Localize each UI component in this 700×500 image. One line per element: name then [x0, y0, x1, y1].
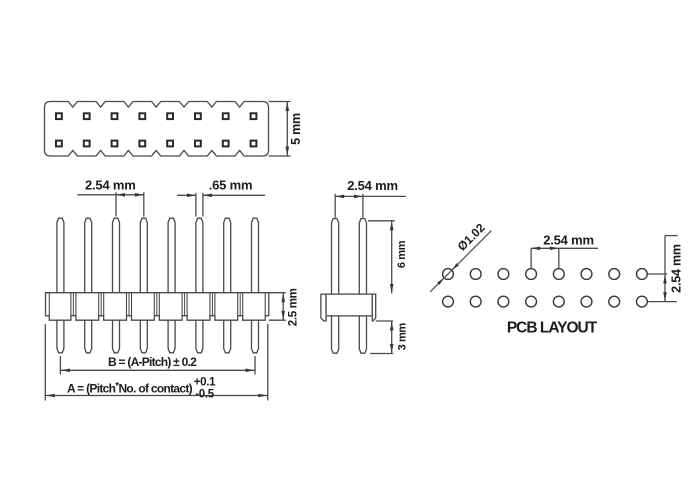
- svg-text:6 mm: 6 mm: [396, 240, 408, 268]
- svg-text:2.54 mm: 2.54 mm: [85, 178, 136, 193]
- svg-text:+0.1: +0.1: [194, 377, 216, 389]
- svg-text:2.54 mm: 2.54 mm: [670, 244, 684, 293]
- svg-text:.65 mm: .65 mm: [209, 178, 253, 193]
- svg-text:2.5 mm: 2.5 mm: [288, 288, 300, 326]
- svg-text:PCB LAYOUT: PCB LAYOUT: [507, 320, 598, 337]
- svg-text:A = (Pitch*No. of contact): A = (Pitch*No. of contact): [67, 381, 193, 396]
- svg-text:5 mm: 5 mm: [289, 113, 303, 145]
- svg-text:-0.5: -0.5: [195, 389, 215, 401]
- svg-text:2.54 mm: 2.54 mm: [347, 178, 398, 193]
- svg-text:B = (A-Pitch) ± 0.2: B = (A-Pitch) ± 0.2: [108, 355, 197, 369]
- svg-text:3 mm: 3 mm: [397, 323, 409, 351]
- svg-text:2.54 mm: 2.54 mm: [543, 233, 594, 248]
